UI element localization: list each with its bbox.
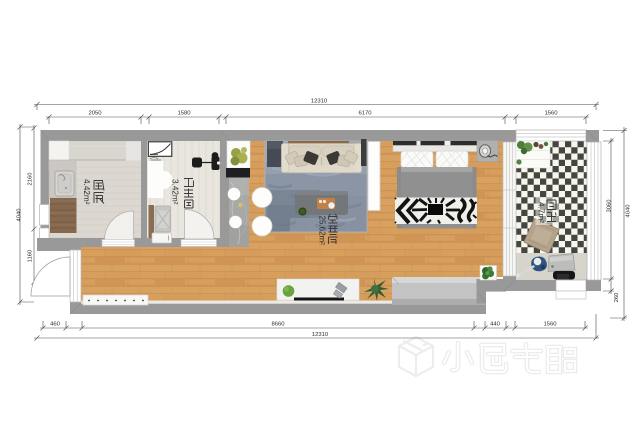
svg-text:4.7m²: 4.7m² [537, 202, 546, 223]
svg-text:2160: 2160 [28, 172, 34, 186]
svg-text:440: 440 [490, 322, 501, 328]
svg-text:2050: 2050 [88, 111, 102, 117]
svg-text:460: 460 [50, 322, 61, 328]
svg-text:25.62m²: 25.62m² [318, 216, 327, 246]
svg-text:3.42m²: 3.42m² [171, 179, 180, 205]
svg-text:4040: 4040 [626, 204, 632, 218]
svg-text:4.42m²: 4.42m² [82, 179, 91, 205]
svg-text:4040: 4040 [17, 208, 23, 222]
svg-text:8660: 8660 [271, 322, 285, 328]
svg-text:1580: 1580 [177, 111, 191, 117]
svg-text:3060: 3060 [607, 199, 613, 213]
svg-text:12310: 12310 [311, 99, 328, 105]
svg-text:12310: 12310 [312, 332, 329, 338]
svg-text:1160: 1160 [28, 249, 34, 262]
svg-text:1560: 1560 [543, 322, 557, 328]
svg-text:1560: 1560 [544, 111, 558, 117]
svg-text:260: 260 [614, 292, 620, 303]
svg-text:6170: 6170 [358, 111, 372, 117]
